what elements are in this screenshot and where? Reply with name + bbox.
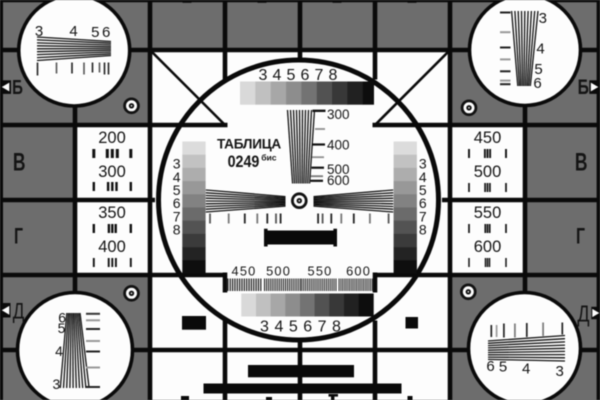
svg-text:5: 5 — [91, 24, 99, 41]
svg-text:6: 6 — [303, 318, 312, 335]
svg-text:бис: бис — [261, 153, 277, 163]
svg-text:600: 600 — [346, 263, 371, 278]
svg-text:3: 3 — [260, 318, 269, 335]
svg-text:Д: Д — [13, 300, 25, 325]
svg-text:4: 4 — [274, 318, 283, 335]
svg-text:500: 500 — [266, 263, 291, 278]
svg-text:6: 6 — [533, 75, 541, 92]
svg-text:5: 5 — [58, 320, 66, 336]
svg-text:6: 6 — [486, 358, 494, 375]
svg-text:4: 4 — [522, 361, 530, 378]
svg-text:3: 3 — [556, 363, 564, 380]
svg-text:8: 8 — [173, 222, 181, 238]
svg-text:3: 3 — [35, 23, 43, 40]
svg-text:8: 8 — [329, 67, 338, 84]
svg-text:Б: Б — [12, 76, 23, 99]
svg-text:3: 3 — [259, 67, 268, 84]
svg-text:400: 400 — [327, 138, 350, 153]
svg-text:300: 300 — [98, 163, 126, 181]
svg-text:5: 5 — [287, 67, 296, 84]
svg-text:600: 600 — [474, 238, 502, 256]
svg-text:4: 4 — [69, 23, 77, 40]
svg-text:5: 5 — [499, 359, 507, 376]
svg-text:7: 7 — [315, 67, 324, 84]
svg-text:ТАБЛИЦА: ТАБЛИЦА — [217, 136, 281, 151]
svg-text:Б: Б — [578, 75, 589, 99]
svg-text:Г: Г — [576, 225, 585, 249]
svg-text:0249: 0249 — [228, 153, 260, 171]
svg-text:Д: Д — [577, 301, 589, 327]
svg-text:5: 5 — [289, 318, 298, 335]
svg-text:6: 6 — [102, 24, 110, 41]
svg-text:400: 400 — [98, 238, 126, 256]
svg-text:3: 3 — [53, 376, 61, 392]
svg-text:4: 4 — [273, 67, 282, 84]
svg-text:450: 450 — [232, 263, 257, 278]
svg-text:4: 4 — [536, 41, 544, 58]
svg-text:450: 450 — [474, 129, 502, 147]
svg-text:550: 550 — [308, 263, 333, 278]
svg-text:500: 500 — [474, 163, 502, 181]
svg-text:В: В — [13, 147, 26, 176]
svg-text:7: 7 — [318, 318, 327, 335]
svg-text:300: 300 — [327, 107, 350, 122]
svg-text:8: 8 — [332, 318, 341, 335]
svg-text:200: 200 — [98, 129, 126, 147]
svg-text:4: 4 — [55, 343, 63, 359]
svg-text:В: В — [575, 147, 588, 176]
svg-text:Г: Г — [14, 225, 23, 249]
svg-text:3: 3 — [539, 10, 547, 27]
svg-text:6: 6 — [301, 67, 310, 84]
svg-text:600: 600 — [327, 173, 350, 188]
svg-text:350: 350 — [98, 204, 126, 222]
svg-text:8: 8 — [419, 222, 427, 238]
svg-text:550: 550 — [474, 204, 502, 222]
